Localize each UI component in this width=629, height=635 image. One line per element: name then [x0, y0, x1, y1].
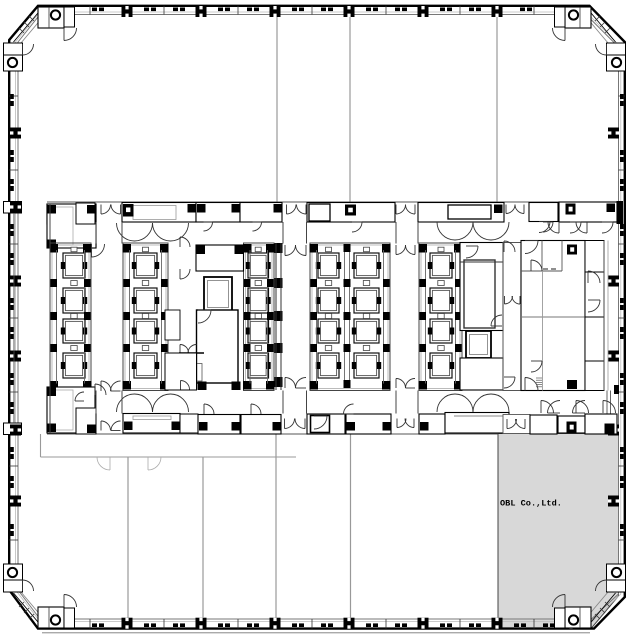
svg-text:OBL Co.,Ltd.: OBL Co.,Ltd.: [500, 499, 562, 509]
